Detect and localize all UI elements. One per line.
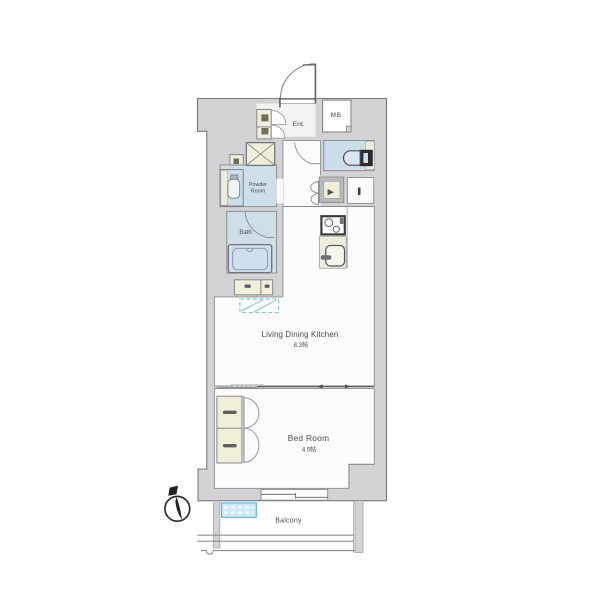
svg-text:Room: Room: [251, 188, 266, 194]
svg-text:Balcony: Balcony: [275, 518, 302, 525]
svg-text:Powder: Powder: [249, 182, 267, 188]
svg-text:Living Dining Kitchen: Living Dining Kitchen: [262, 330, 339, 339]
svg-text:4.5帖: 4.5帖: [302, 446, 316, 454]
svg-text:MB: MB: [331, 112, 342, 119]
svg-text:Ent.: Ent.: [293, 121, 305, 128]
svg-text:8.3帖: 8.3帖: [294, 341, 308, 349]
svg-text:Bed Room: Bed Room: [288, 433, 330, 443]
svg-text:Bath: Bath: [239, 230, 251, 236]
